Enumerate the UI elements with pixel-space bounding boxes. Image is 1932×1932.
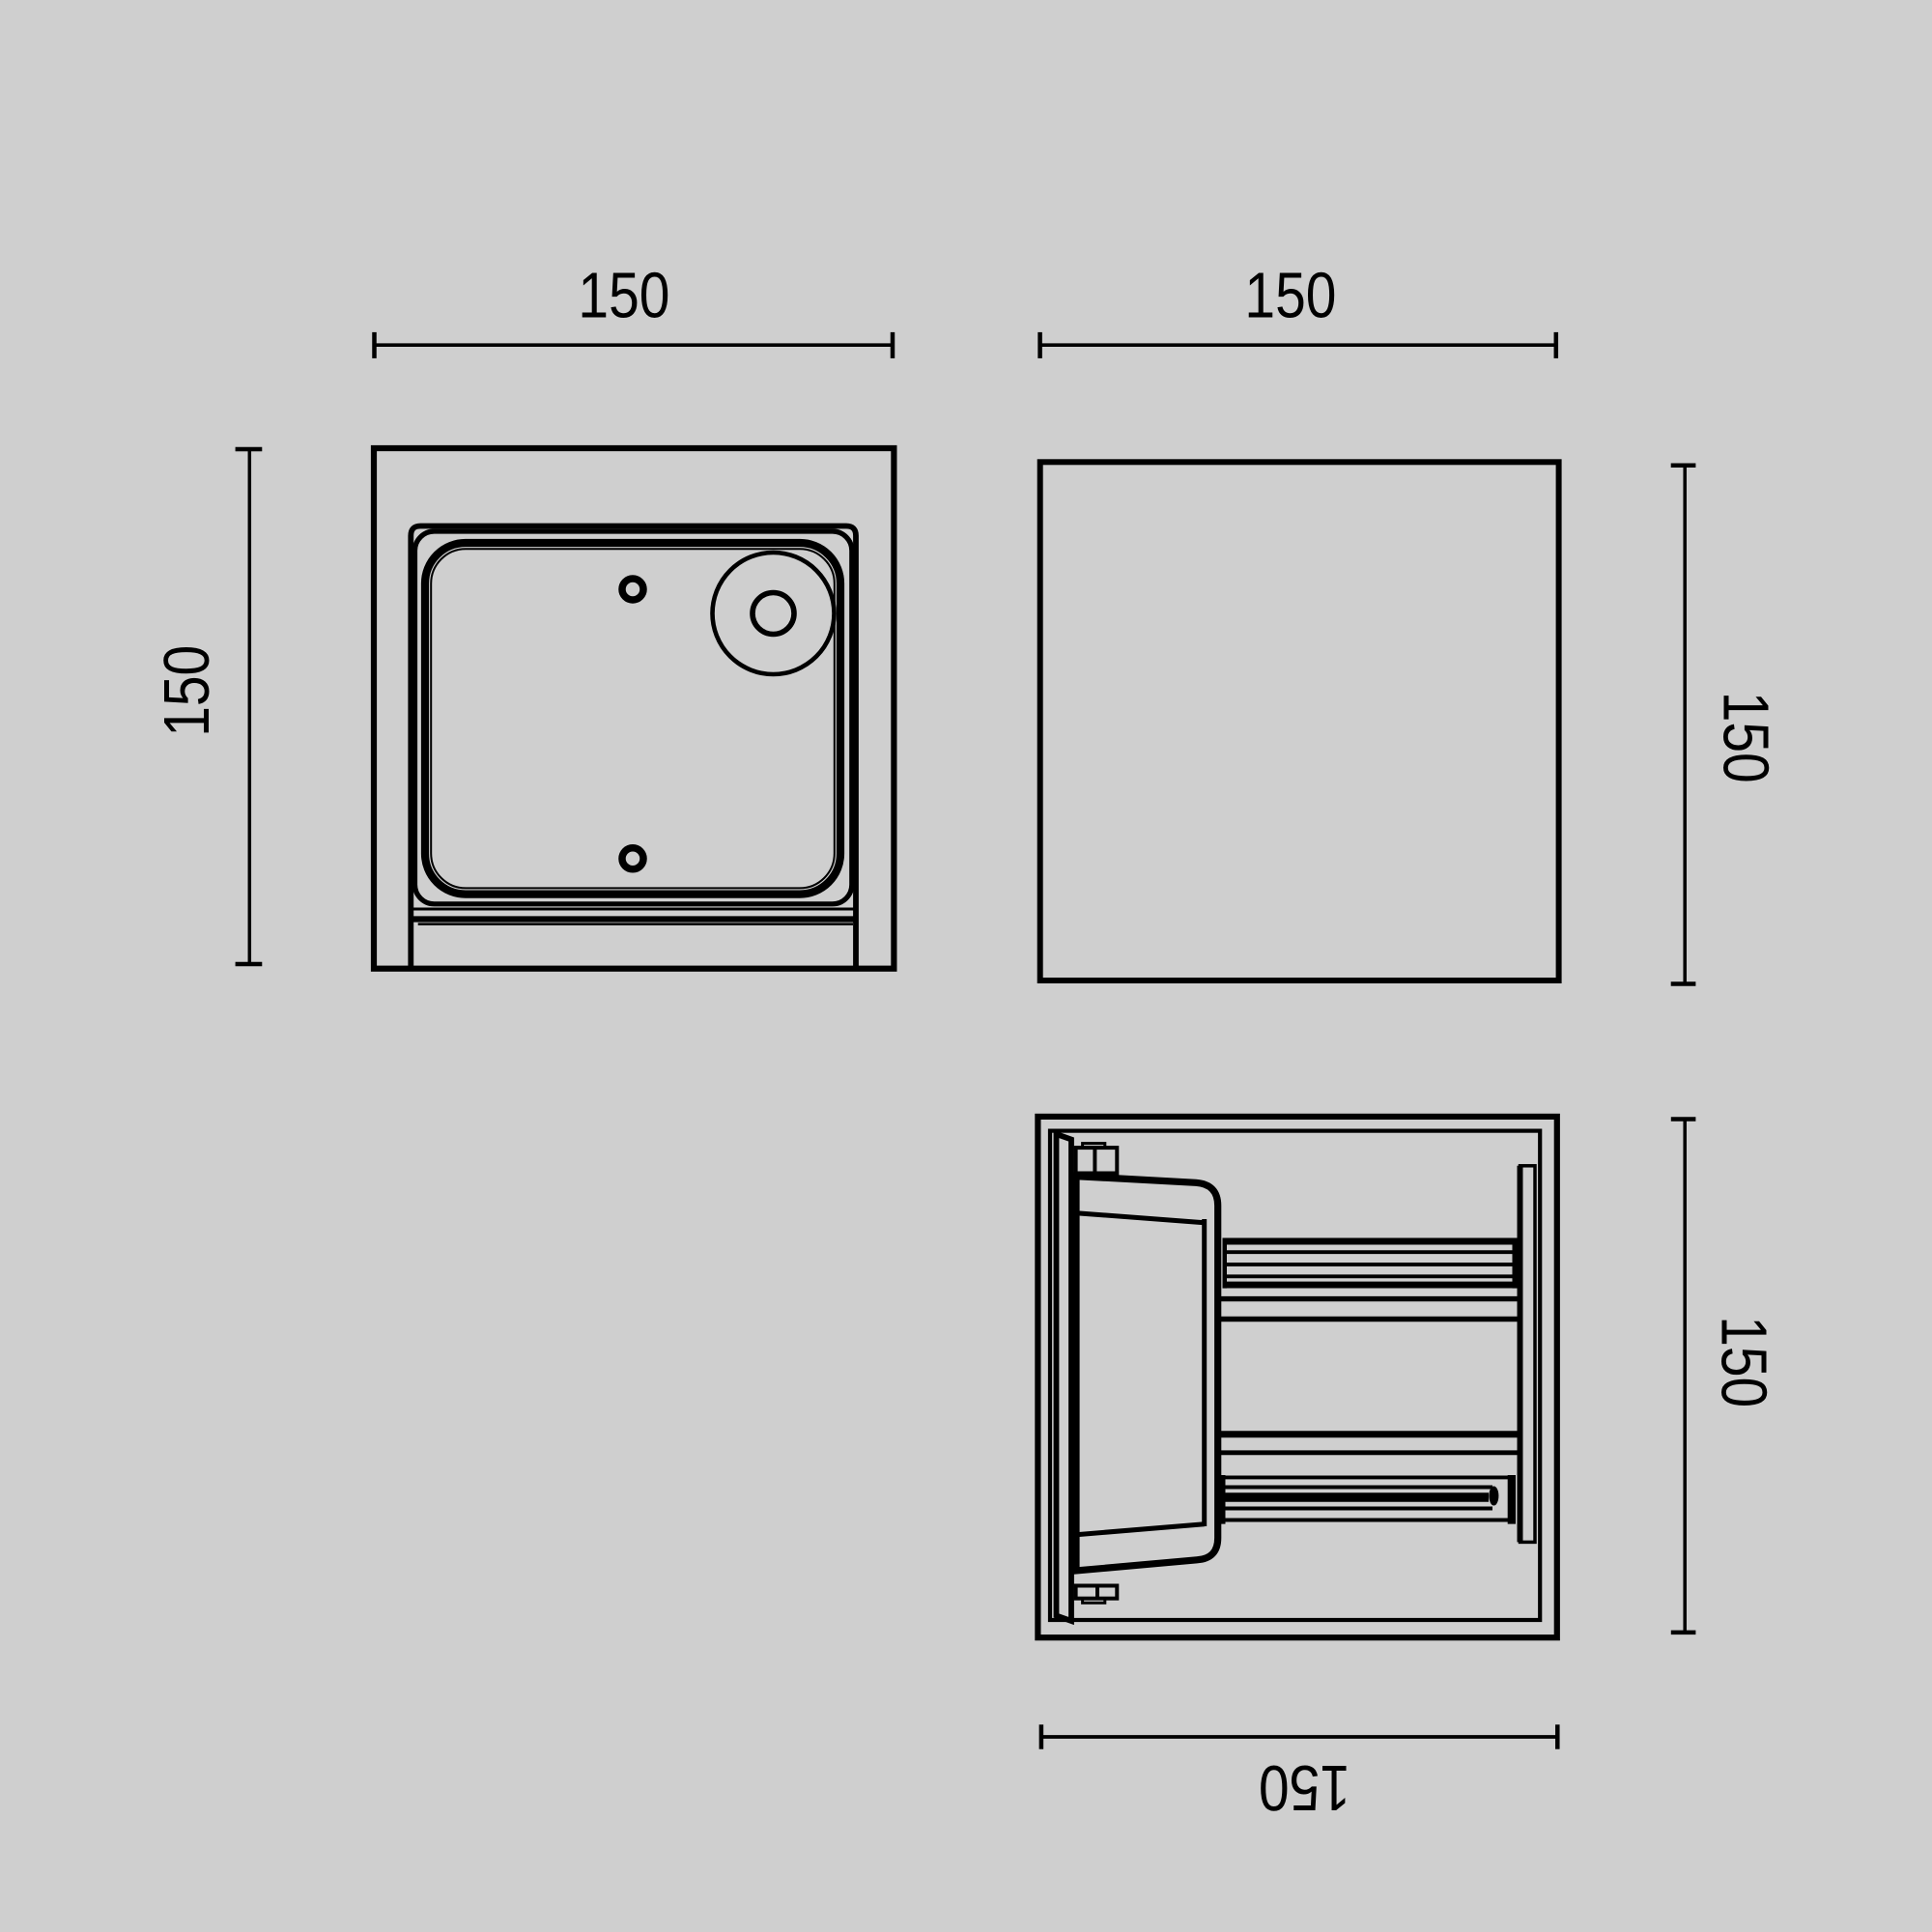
svg-text:150: 150 xyxy=(1709,692,1780,783)
svg-text:150: 150 xyxy=(1244,260,1336,331)
svg-text:150: 150 xyxy=(152,645,223,737)
svg-text:150: 150 xyxy=(1259,1751,1350,1823)
svg-text:150: 150 xyxy=(578,260,669,331)
svg-text:150: 150 xyxy=(1708,1316,1779,1407)
